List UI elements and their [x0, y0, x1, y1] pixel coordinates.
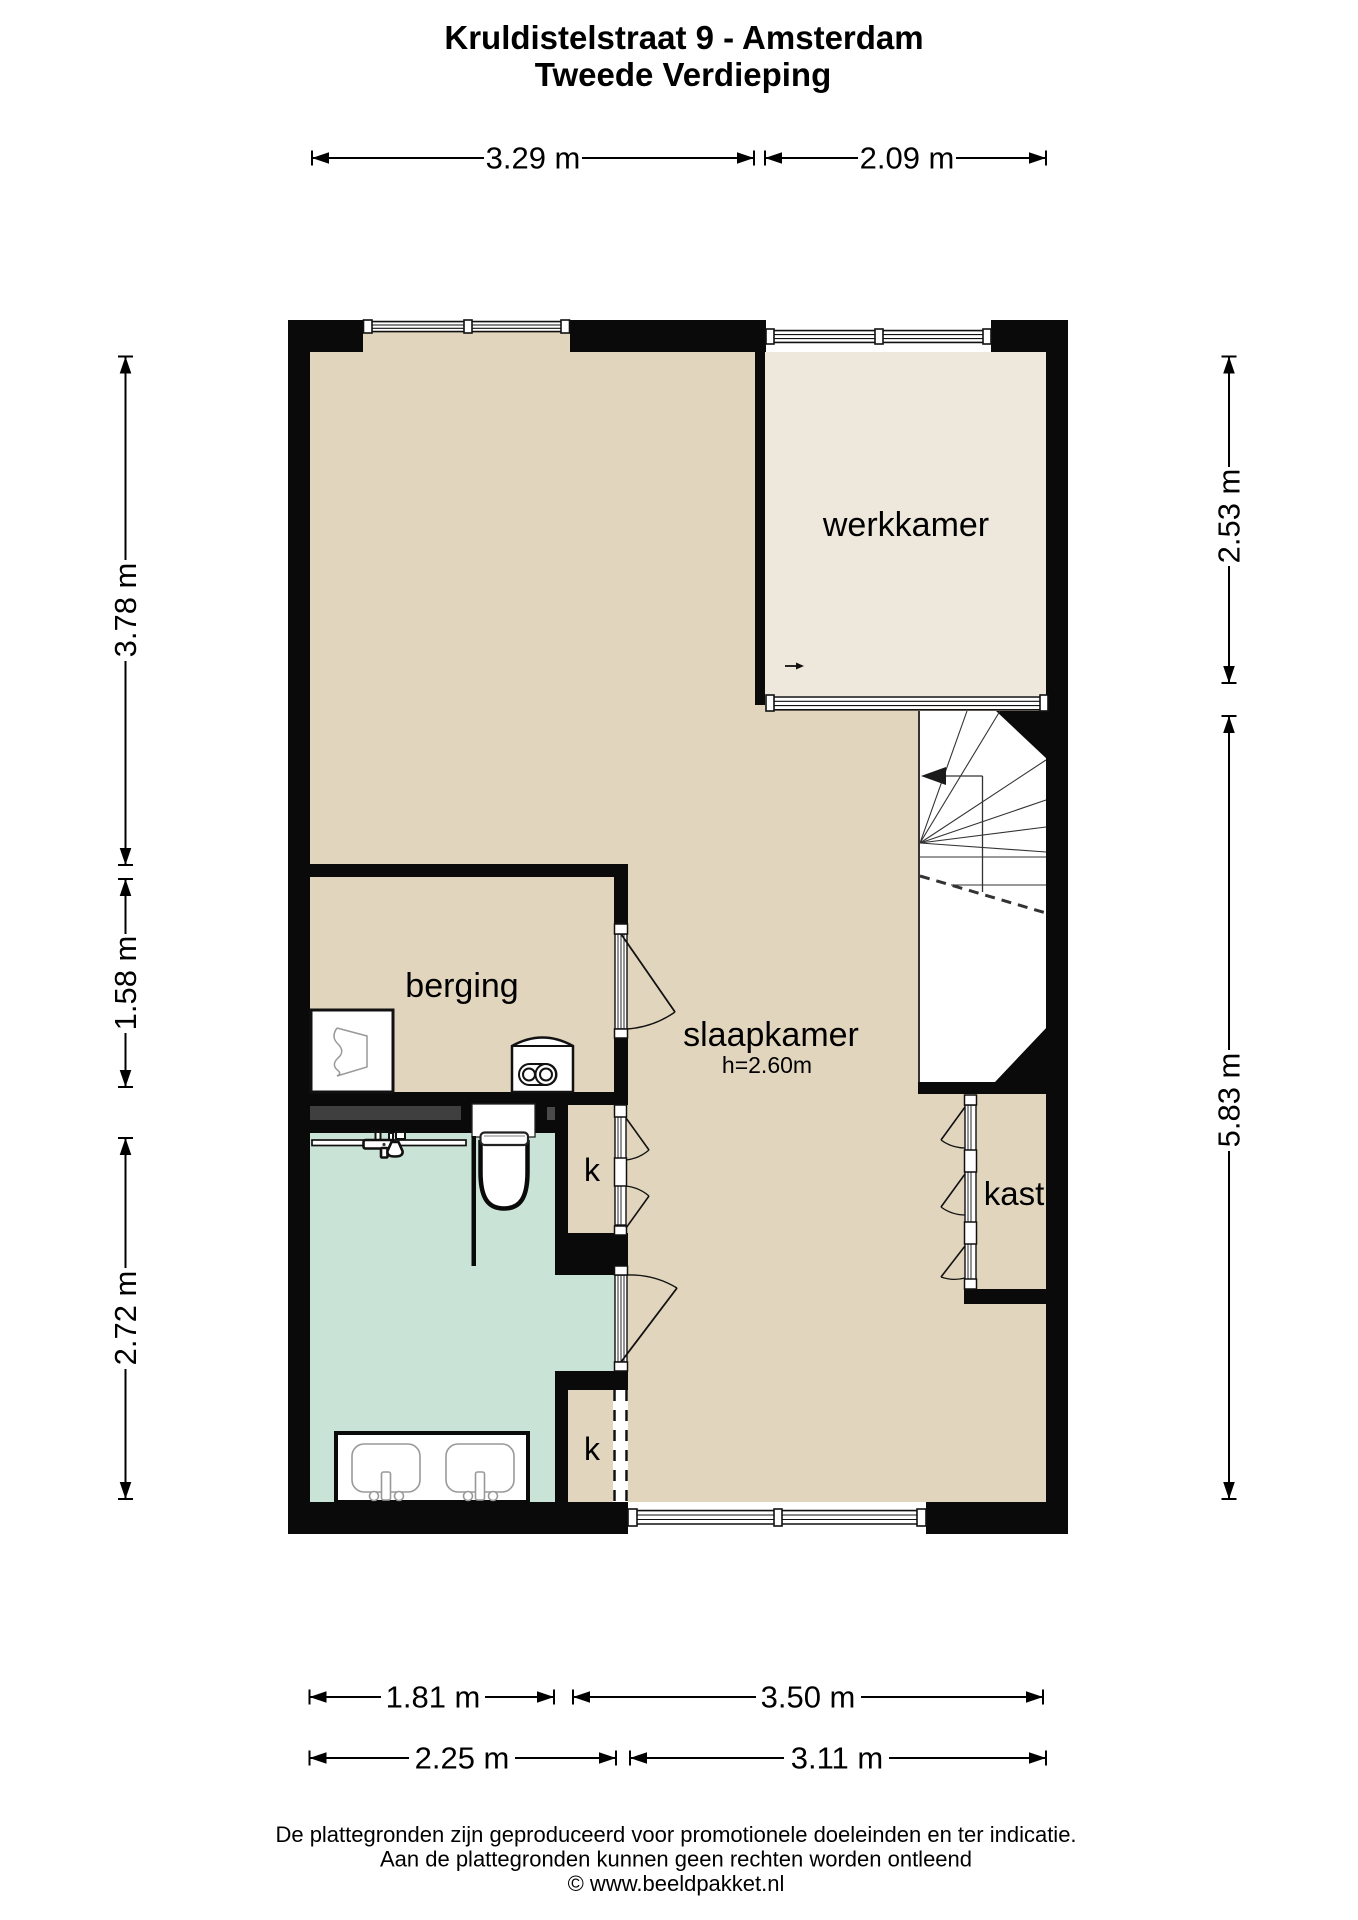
svg-text:1.58 m: 1.58 m: [108, 936, 143, 1031]
svg-text:© www.beeldpakket.nl: © www.beeldpakket.nl: [568, 1871, 785, 1896]
svg-text:3.11 m: 3.11 m: [791, 1741, 883, 1776]
svg-text:berging: berging: [405, 967, 518, 1005]
svg-text:2.53 m: 2.53 m: [1212, 469, 1247, 564]
svg-text:3.29 m: 3.29 m: [486, 141, 581, 176]
svg-text:Kruldistelstraat 9 - Amsterdam: Kruldistelstraat 9 - Amsterdam: [444, 19, 923, 56]
svg-text:Aan de plattegronden kunnen ge: Aan de plattegronden kunnen geen rechten…: [380, 1847, 972, 1872]
svg-text:1.81 m: 1.81 m: [386, 1680, 481, 1715]
svg-text:5.83 m: 5.83 m: [1212, 1053, 1247, 1148]
svg-text:De plattegronden zijn geproduc: De plattegronden zijn geproduceerd voor …: [275, 1822, 1076, 1847]
svg-text:Tweede Verdieping: Tweede Verdieping: [535, 56, 831, 93]
svg-text:2.72 m: 2.72 m: [108, 1271, 143, 1366]
svg-text:2.25 m: 2.25 m: [415, 1741, 510, 1776]
svg-text:k: k: [584, 1431, 601, 1467]
svg-text:3.78 m: 3.78 m: [108, 563, 143, 658]
svg-text:slaapkamer: slaapkamer: [683, 1016, 859, 1054]
svg-text:h=2.60m: h=2.60m: [722, 1052, 812, 1078]
svg-text:k: k: [584, 1152, 601, 1188]
svg-text:2.09 m: 2.09 m: [860, 141, 955, 176]
svg-text:kast: kast: [984, 1175, 1045, 1212]
svg-text:werkkamer: werkkamer: [822, 506, 989, 544]
svg-text:3.50 m: 3.50 m: [761, 1680, 856, 1715]
